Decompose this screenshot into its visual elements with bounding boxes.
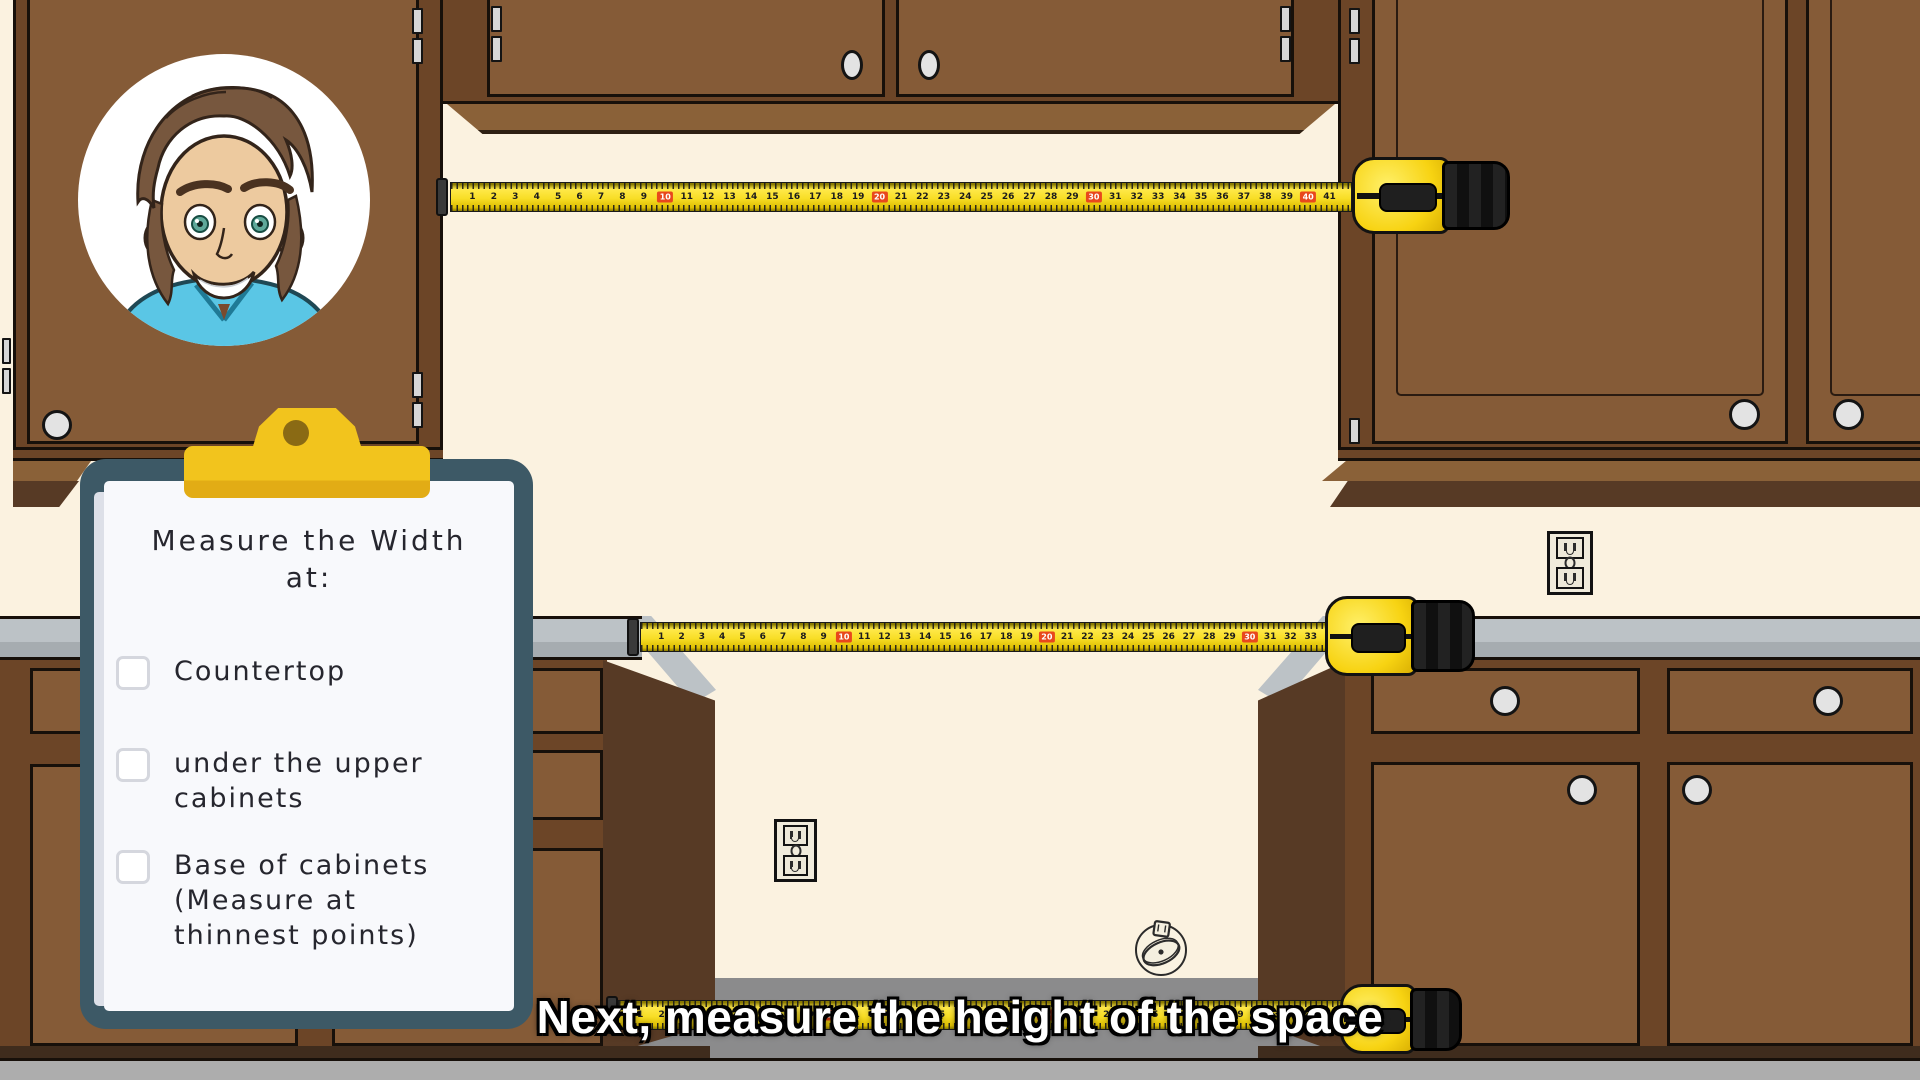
cabinet-knob: [841, 50, 863, 80]
presenter-avatar: [76, 52, 372, 348]
tape-number: 30: [1086, 192, 1102, 203]
tape-number: 3: [512, 192, 518, 202]
tape-number: 14: [745, 192, 758, 202]
cabinet-knob: [918, 50, 940, 80]
tape-number: 12: [702, 192, 715, 202]
tape-number: 33: [1304, 632, 1317, 642]
power-outlet-icon: [774, 819, 817, 882]
tape-number: 8: [619, 192, 625, 202]
tape-number: 21: [1061, 632, 1074, 642]
tape-number: 19: [852, 192, 865, 202]
tape-number: 28: [1045, 192, 1058, 202]
cabinet-knob: [1833, 399, 1864, 430]
tape-measure-body: [1325, 596, 1475, 676]
tape-number: 7: [598, 192, 604, 202]
dish-ornament-icon: [1131, 919, 1191, 979]
tape-number: 10: [657, 192, 673, 203]
hinge-icon: [412, 8, 423, 64]
tape-number: 32: [1284, 632, 1297, 642]
clipboard: Measure the Width at: Countertopunder th…: [80, 406, 533, 1029]
tape-number: 29: [1223, 632, 1236, 642]
tape-number: 16: [959, 632, 972, 642]
tape-number: 24: [959, 192, 972, 202]
tape-number: 35: [1195, 192, 1208, 202]
power-outlet-icon: [1547, 531, 1593, 595]
tape-number: 13: [899, 632, 912, 642]
drawer-knob: [1490, 686, 1520, 716]
checklist-item-label: under the uppercabinets: [174, 746, 424, 816]
tape-number: 3: [699, 632, 705, 642]
tape-number: 21: [895, 192, 908, 202]
tape-number: 38: [1259, 192, 1272, 202]
tape-number: 23: [938, 192, 951, 202]
tape-number: 15: [766, 192, 779, 202]
cabinet-door: [896, 0, 1294, 97]
cabinet-knob: [1729, 399, 1760, 430]
tape-number: 27: [1183, 632, 1196, 642]
tape-hook: [627, 618, 639, 656]
checklist-item-label: Countertop: [174, 654, 346, 689]
hinge-icon: [2, 338, 11, 394]
tape-number: 17: [809, 192, 822, 202]
kitchen-scene: 1234567891011121314151617181920212223242…: [0, 0, 1920, 1080]
tape-number: 20: [1039, 632, 1055, 643]
hinge-icon: [1280, 6, 1291, 62]
cabinet-molding-shadow: [13, 481, 79, 507]
tape-number: 30: [1242, 632, 1258, 643]
tape-number: 6: [576, 192, 582, 202]
tape-number: 25: [1142, 632, 1155, 642]
tape-number: 26: [1002, 192, 1015, 202]
tape-number: 34: [1173, 192, 1186, 202]
tape-number: 39: [1280, 192, 1293, 202]
checklist-item: under the uppercabinets: [116, 746, 514, 816]
checklist-title-line2: at:: [104, 559, 514, 596]
floor: [0, 1058, 1920, 1080]
tape-number: 7: [780, 632, 786, 642]
cabinet-door: [487, 0, 885, 97]
tape-number: 12: [878, 632, 891, 642]
tape-number: 4: [719, 632, 725, 642]
tape-number: 6: [760, 632, 766, 642]
checklist-item: Base of cabinets(Measure atthinnest poin…: [116, 848, 514, 953]
tape-case-black: [1442, 161, 1510, 230]
tape-number: 32: [1130, 192, 1143, 202]
tape-number: 24: [1122, 632, 1135, 642]
tape-belt-clip: [1379, 183, 1437, 212]
tape-number: 28: [1203, 632, 1216, 642]
checklist-title-line1: Measure the Width: [104, 522, 514, 559]
cabinet-molding-shadow: [1330, 481, 1920, 507]
cabinet-knob: [1682, 775, 1712, 805]
tape-number: 13: [723, 192, 736, 202]
measuring-tape-top: 1234567891011121314151617181920212223242…: [450, 182, 1352, 212]
checkbox-icon: [116, 850, 150, 884]
tape-number: 27: [1023, 192, 1036, 202]
cabinet-molding: [447, 104, 1335, 134]
tape-number: 8: [800, 632, 806, 642]
hinge-icon: [1349, 8, 1360, 64]
tape-number: 18: [1000, 632, 1013, 642]
cabinet-molding: [1322, 461, 1920, 481]
clipboard-clip-hole: [283, 420, 309, 446]
tape-number: 20: [871, 192, 887, 203]
checkbox-icon: [116, 748, 150, 782]
clipboard-clip-bar: [184, 446, 430, 498]
tape-number: 25: [980, 192, 993, 202]
tape-number: 2: [678, 632, 684, 642]
toe-kick: [0, 1046, 710, 1058]
checklist: Countertopunder the uppercabinetsBase of…: [116, 654, 514, 953]
tape-number: 33: [1152, 192, 1165, 202]
tape-number: 1: [658, 632, 664, 642]
tape-number: 2: [491, 192, 497, 202]
tape-number: 14: [919, 632, 932, 642]
tape-number: 5: [739, 632, 745, 642]
tape-number: 19: [1020, 632, 1033, 642]
tape-number: 17: [980, 632, 993, 642]
tape-number: 16: [788, 192, 801, 202]
tape-number: 11: [680, 192, 693, 202]
checklist-item: Countertop: [116, 654, 514, 690]
tape-number: 9: [821, 632, 827, 642]
checklist-item-label: Base of cabinets(Measure atthinnest poin…: [174, 848, 429, 953]
drawer-knob: [1813, 686, 1843, 716]
tape-number: 4: [534, 192, 540, 202]
drawer-front: [1667, 668, 1913, 734]
tape-number: 37: [1238, 192, 1251, 202]
tape-belt-clip: [1351, 623, 1406, 653]
tape-number: 41: [1323, 192, 1336, 202]
tape-number: 23: [1101, 632, 1114, 642]
checkbox-icon: [116, 656, 150, 690]
tape-number: 36: [1216, 192, 1229, 202]
tape-number: 40: [1300, 192, 1316, 203]
tape-number: 9: [641, 192, 647, 202]
subtitle-caption: Next, measure the height of the space: [0, 990, 1920, 1044]
tape-number: 18: [830, 192, 843, 202]
tape-number: 15: [939, 632, 952, 642]
tape-hook: [436, 178, 448, 216]
hinge-icon: [491, 6, 502, 62]
tape-case-black: [1411, 600, 1476, 672]
tape-number: 1: [469, 192, 475, 202]
cabinet-knob: [1567, 775, 1597, 805]
tape-measure-body: [1352, 157, 1510, 234]
tape-number: 10: [836, 632, 852, 643]
tape-number: 31: [1264, 632, 1277, 642]
tape-number: 22: [916, 192, 929, 202]
tape-number: 31: [1109, 192, 1122, 202]
tape-number: 26: [1162, 632, 1175, 642]
measuring-tape-middle: 1234567891011121314151617181920212223242…: [640, 622, 1332, 652]
tape-number: 5: [555, 192, 561, 202]
cabinet-knob: [42, 410, 72, 440]
door-routed-panel: [1830, 0, 1920, 396]
tape-number: 22: [1081, 632, 1094, 642]
checklist-title: Measure the Width at:: [104, 522, 514, 596]
tape-number: 11: [858, 632, 871, 642]
tape-number: 29: [1066, 192, 1079, 202]
